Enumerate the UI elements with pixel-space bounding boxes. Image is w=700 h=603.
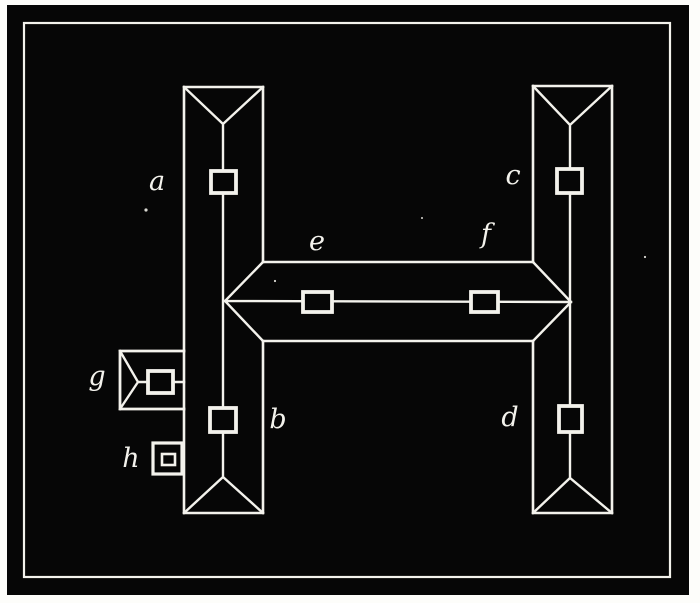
- label-outbuilding: g: [88, 361, 105, 392]
- label-right-wing-lower: d: [501, 402, 518, 433]
- label-cross-wing-left: e: [309, 226, 325, 257]
- chimney-c: [557, 169, 582, 193]
- label-left-wing-upper: a: [149, 166, 165, 197]
- label-annex: h: [122, 443, 139, 474]
- chimney-g: [148, 371, 173, 393]
- ink-speck: [144, 208, 147, 211]
- roof-plan-figure: a b c d e f g h: [0, 0, 700, 603]
- ink-speck: [274, 280, 276, 282]
- chimney-d: [559, 406, 582, 432]
- ink-speck: [644, 256, 646, 258]
- plate-background: [7, 5, 689, 595]
- chimney-a: [211, 171, 236, 193]
- ink-speck: [421, 217, 423, 219]
- label-left-wing-lower: b: [269, 404, 286, 435]
- chimney-b: [210, 408, 236, 432]
- chimney-f: [471, 292, 498, 312]
- engraving-page: a b c d e f g h: [0, 0, 700, 603]
- chimney-e: [303, 292, 332, 312]
- label-right-wing-upper: c: [505, 160, 520, 191]
